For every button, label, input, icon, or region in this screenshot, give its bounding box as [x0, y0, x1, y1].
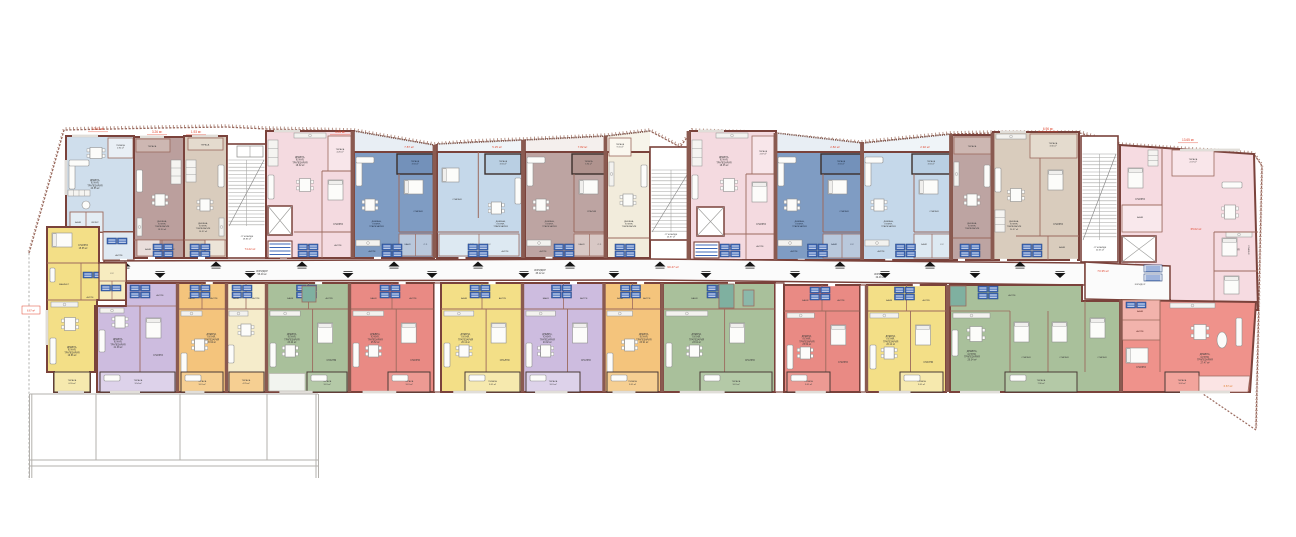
- svg-text:СПАЛНЯ: СПАЛНЯ: [410, 359, 420, 362]
- svg-text:СПАЛНЯ: СПАЛНЯ: [587, 210, 597, 213]
- svg-text:58.49 м²: 58.49 м²: [257, 273, 266, 276]
- svg-text:КУХНЯ,: КУХНЯ,: [640, 337, 649, 339]
- svg-text:БАНЯ: БАНЯ: [145, 248, 151, 251]
- svg-text:ТРАПЕЗАРИЯ: ТРАПЕЗАРИЯ: [965, 227, 980, 230]
- svg-text:АНТРЕ: АНТРЕ: [502, 250, 510, 253]
- svg-text:АНТРЕ: АНТРЕ: [252, 297, 260, 300]
- svg-text:СПАЛНЯ: СПАЛНЯ: [78, 244, 88, 247]
- svg-text:ДНЕВНА,: ДНЕВНА,: [1009, 220, 1019, 223]
- svg-text:7.82 м²: 7.82 м²: [578, 145, 587, 149]
- svg-text:3.61 м²: 3.61 м²: [805, 383, 812, 386]
- svg-text:АНТРЕ: АНТРЕ: [923, 299, 931, 302]
- svg-text:73.35 м²: 73.35 м²: [1097, 269, 1108, 273]
- svg-text:ТРАПЕЗАРИЯ: ТРАПЕЗАРИЯ: [368, 338, 384, 341]
- svg-text:ТЕРАСА: ТЕРАСА: [336, 148, 345, 151]
- svg-text:ТРАПЕЗАРИЯ: ТРАПЕЗАРИЯ: [542, 225, 557, 228]
- svg-text:ТЕРАСА: ТЕРАСА: [134, 379, 143, 382]
- svg-text:8.67 м²: 8.67 м²: [27, 310, 35, 313]
- svg-text:КОРИДОР: КОРИДОР: [1135, 284, 1146, 286]
- svg-text:ДНЕВНА,: ДНЕВНА,: [692, 333, 702, 336]
- svg-text:ДНЕВНА,: ДНЕВНА,: [157, 220, 167, 223]
- svg-text:ТРАПЕЗАРИЯ: ТРАПЕЗАРИЯ: [799, 340, 815, 343]
- svg-text:ТЕРАСА: ТЕРАСА: [201, 144, 210, 147]
- svg-text:ТРАПЕЗАРИЯ: ТРАПЕЗАРИЯ: [369, 225, 384, 228]
- svg-text:БАНЯ: БАНЯ: [370, 297, 376, 300]
- svg-text:ТЕРАСА: ТЕРАСА: [549, 380, 558, 383]
- svg-text:БАНЯ: БАНЯ: [75, 221, 81, 224]
- svg-text:3.61 м²: 3.61 м²: [732, 383, 739, 386]
- svg-text:ТЕРАСА: ТЕРАСА: [116, 144, 125, 147]
- svg-text:20.92 м²: 20.92 м²: [543, 341, 552, 344]
- svg-text:ТЕРАСА: ТЕРАСА: [148, 145, 157, 148]
- svg-text:АНТРЕ: АНТРЕ: [210, 297, 218, 300]
- svg-text:АНТРЕ: АНТРЕ: [643, 297, 651, 300]
- svg-text:ТРАПЕЗАРИЯ: ТРАПЕЗАРИЯ: [540, 338, 556, 341]
- svg-text:90.47 м²: 90.47 м²: [667, 265, 678, 269]
- svg-text:18.35 м²: 18.35 м²: [720, 164, 729, 167]
- svg-text:СПАЛНЯ: СПАЛНЯ: [1136, 366, 1146, 369]
- svg-text:АНТРЕ: АНТРЕ: [837, 299, 845, 302]
- svg-text:3.61 м²: 3.61 м²: [549, 383, 556, 386]
- svg-text:6.55 м²: 6.55 м²: [68, 382, 75, 385]
- svg-text:ДНЕВНА,: ДНЕВНА,: [287, 333, 297, 336]
- svg-text:3.61 м²: 3.61 м²: [918, 383, 925, 386]
- svg-text:4.26 м²: 4.26 м²: [335, 130, 345, 134]
- svg-text:26.12 м²: 26.12 м²: [461, 341, 470, 344]
- svg-text:БАНЯ: БАНЯ: [831, 243, 837, 246]
- svg-text:21.38 м²: 21.38 м²: [114, 346, 123, 349]
- svg-text:20.37 м²: 20.37 м²: [1010, 228, 1019, 231]
- svg-text:КУХНЯ,: КУХНЯ,: [692, 337, 701, 339]
- svg-text:АНТРЕ: АНТРЕ: [326, 297, 334, 300]
- svg-text:КУХНЯ,: КУХНЯ,: [543, 337, 552, 339]
- svg-text:ТРАПЕЗАРИЯ: ТРАПЕЗАРИЯ: [636, 338, 652, 341]
- svg-text:ДНЕВНА,: ДНЕВНА,: [295, 156, 305, 159]
- svg-text:ТРАПЕЗАРИЯ: ТРАПЕЗАРИЯ: [284, 338, 300, 341]
- svg-text:19.86 м²: 19.86 м²: [68, 354, 77, 357]
- svg-text:БАНЯ: БАНЯ: [1059, 246, 1065, 249]
- svg-text:АНТРЕ: АНТРЕ: [409, 297, 417, 300]
- svg-text:ДНЕВНА,: ДНЕВНА,: [795, 220, 805, 223]
- svg-text:КУХНЯ,: КУХНЯ,: [68, 350, 77, 352]
- svg-text:ТРАПЕЗАРИЯ: ТРАПЕЗАРИЯ: [881, 225, 896, 228]
- svg-text:АНТРЕ: АНТРЕ: [1136, 330, 1144, 333]
- svg-text:ДНЕВНА,: ДНЕВНА,: [624, 220, 634, 223]
- svg-text:12.62 м²: 12.62 м²: [92, 127, 104, 131]
- svg-text:ТРАПЕЗАРИЯ: ТРАПЕЗАРИЯ: [155, 225, 170, 228]
- svg-text:СПАЛНЯ: СПАЛНЯ: [756, 223, 766, 226]
- svg-text:ДНЕВНА,: ДНЕВНА,: [802, 335, 812, 338]
- svg-text:4.25 м²: 4.25 м²: [242, 382, 249, 385]
- svg-text:КУХНЯ,: КУХНЯ,: [114, 342, 123, 344]
- svg-text:КУХНЯ,: КУХНЯ,: [803, 339, 812, 341]
- svg-text:С.У.: С.У.: [940, 244, 944, 246]
- svg-text:ТЕРАСА: ТЕРАСА: [488, 380, 497, 383]
- svg-text:ТРАПЕЗАРИЯ: ТРАПЕЗАРИЯ: [64, 351, 80, 354]
- svg-text:3.30 м²: 3.30 м²: [1049, 145, 1056, 148]
- svg-text:65.02 м²: 65.02 м²: [1191, 227, 1202, 231]
- svg-text:СПАЛНЯ: СПАЛНЯ: [839, 210, 849, 213]
- svg-text:КУХНЯ,: КУХНЯ,: [207, 337, 216, 339]
- svg-text:ДНЕВНА,: ДНЕВНА,: [545, 220, 555, 223]
- svg-text:ДНЕВНА,: ДНЕВНА,: [542, 333, 552, 336]
- svg-text:20.92 м²: 20.92 м²: [207, 341, 216, 344]
- svg-text:ТРАПЕЗАРИЯ: ТРАПЕЗАРИЯ: [689, 338, 705, 341]
- svg-text:СПАЛНЯ: СПАЛНЯ: [153, 354, 163, 357]
- svg-text:ТЕРАСА: ТЕРАСА: [1049, 142, 1058, 145]
- svg-text:СПАЛНЯ: СПАЛНЯ: [1135, 198, 1145, 201]
- svg-text:КУХНЯ,: КУХНЯ,: [371, 337, 380, 339]
- svg-text:ТРАПЕЗАРИЯ: ТРАПЕЗАРИЯ: [622, 225, 637, 228]
- svg-text:АНТРЕ: АНТРЕ: [540, 250, 548, 253]
- svg-text:25.52 м²: 25.52 м²: [802, 343, 811, 346]
- svg-text:ТРАПЕЗАРИЯ: ТРАПЕЗАРИЯ: [458, 338, 474, 341]
- svg-text:ТЕРАСА: ТЕРАСА: [732, 380, 741, 383]
- svg-text:БАНЯ: БАНЯ: [886, 299, 892, 302]
- svg-text:АНТРЕ: АНТРЕ: [369, 250, 377, 253]
- svg-text:АНТРЕ: АНТРЕ: [115, 254, 123, 257]
- svg-text:ДНЕВНА,: ДНЕВНА,: [198, 222, 208, 225]
- svg-text:КАБИНЕТ: КАБИНЕТ: [59, 283, 70, 286]
- svg-text:СПАЛНЯ: СПАЛНЯ: [333, 223, 343, 226]
- svg-text:ТРАПЕЗАРИЯ: ТРАПЕЗАРИЯ: [110, 343, 126, 346]
- svg-text:ТРАПЕЗАРИЯ: ТРАПЕЗАРИЯ: [716, 161, 732, 164]
- svg-text:27.47 м²: 27.47 м²: [1200, 361, 1209, 364]
- svg-text:БАНЯ: БАНЯ: [691, 297, 697, 300]
- svg-text:4.26 м²: 4.26 м²: [336, 151, 343, 154]
- svg-text:АНТРЕ: АНТРЕ: [1008, 294, 1016, 297]
- svg-text:ТЕРАСА: ТЕРАСА: [968, 145, 977, 148]
- svg-text:26.12 м²: 26.12 м²: [886, 343, 895, 346]
- svg-text:БАНЯ: БАНЯ: [1137, 310, 1143, 313]
- svg-text:С.У.: С.У.: [110, 273, 114, 275]
- svg-text:ДНЕВНА,: ДНЕВНА,: [461, 333, 471, 336]
- svg-text:18.32 м²: 18.32 м²: [296, 164, 305, 167]
- svg-text:23.24 м²: 23.24 м²: [288, 341, 297, 344]
- svg-text:ТРАПЕЗАРИЯ: ТРАПЕЗАРИЯ: [87, 184, 103, 187]
- svg-text:3.94 м²: 3.94 м²: [412, 163, 419, 166]
- svg-text:СПАЛНЯ: СПАЛНЯ: [1021, 356, 1031, 359]
- svg-text:ДНЕВНА,: ДНЕВНА,: [90, 179, 100, 182]
- svg-text:КУХНЯ,: КУХНЯ,: [296, 160, 305, 162]
- svg-text:13.65 м²: 13.65 м²: [1182, 138, 1194, 142]
- svg-text:2.92 м²: 2.92 м²: [920, 145, 929, 149]
- svg-text:ТРАПЕЗАРИЯ: ТРАПЕЗАРИЯ: [883, 340, 899, 343]
- svg-text:45.12 м²: 45.12 м²: [535, 272, 544, 275]
- svg-text:ТЕРАСА: ТЕРАСА: [1189, 158, 1198, 161]
- svg-text:ДНЕВНА,: ДНЕВНА,: [884, 220, 894, 223]
- svg-text:ДНЕВНА,: ДНЕВНА,: [639, 333, 649, 336]
- svg-text:СПАЛНЯ: СПАЛНЯ: [452, 198, 462, 201]
- svg-text:3.61 м²: 3.61 м²: [629, 383, 636, 386]
- svg-text:ДНЕВНА,: ДНЕВНА,: [719, 156, 729, 159]
- svg-text:АНТРЕ: АНТРЕ: [499, 297, 507, 300]
- svg-text:6.96 м²: 6.96 м²: [1043, 127, 1053, 131]
- svg-text:2.37 м²: 2.37 м²: [1189, 161, 1196, 164]
- svg-text:ДНЕВНА,: ДНЕВНА,: [886, 335, 896, 338]
- svg-text:СПАЛНЯ: СПАЛНЯ: [1247, 245, 1250, 255]
- svg-text:КУХНЯ,: КУХНЯ,: [720, 160, 729, 162]
- svg-text:15.65 м²: 15.65 м²: [79, 247, 88, 250]
- svg-text:ТЕРАСА: ТЕРАСА: [242, 379, 251, 382]
- svg-text:СПАЛНЯ: СПАЛНЯ: [581, 359, 591, 362]
- svg-text:КУХНЯ,: КУХНЯ,: [461, 337, 470, 339]
- svg-text:СПАЛНЯ: СПАЛНЯ: [745, 359, 755, 362]
- svg-text:ТЕРАСА: ТЕРАСА: [628, 380, 637, 383]
- svg-text:26.97 м²: 26.97 м²: [667, 236, 676, 239]
- svg-text:1.93 м²: 1.93 м²: [191, 130, 201, 134]
- svg-text:23.55 м²: 23.55 м²: [91, 187, 100, 190]
- svg-text:С.У.: С.У.: [424, 244, 428, 246]
- svg-text:АНТРЕ: АНТРЕ: [791, 250, 799, 253]
- svg-text:3.54 м²: 3.54 м²: [134, 382, 141, 385]
- svg-text:СПАЛНЯ: СПАЛНЯ: [929, 210, 939, 213]
- svg-text:ДНЕВНА,: ДНЕВНА,: [496, 220, 506, 223]
- svg-text:АНТРЕ: АНТРЕ: [87, 296, 95, 299]
- svg-text:КУХНЯ,: КУХНЯ,: [887, 339, 896, 341]
- svg-text:2.92 м²: 2.92 м²: [117, 147, 124, 150]
- svg-text:КУХНЯ,: КУХНЯ,: [91, 183, 100, 185]
- svg-text:ДНЕВНА,: ДНЕВНА,: [967, 222, 977, 225]
- svg-text:29.34 м²: 29.34 м²: [967, 358, 976, 361]
- svg-text:19.49 м²: 19.49 м²: [875, 276, 884, 279]
- svg-text:ДНЕВНА,: ДНЕВНА,: [372, 220, 382, 223]
- svg-text:20.55 м²: 20.55 м²: [1096, 249, 1105, 252]
- svg-text:АНТРЕ: АНТРЕ: [334, 244, 342, 247]
- svg-text:ТЕРАСА: ТЕРАСА: [1037, 379, 1046, 382]
- svg-text:3.94 м²: 3.94 м²: [585, 163, 592, 166]
- svg-text:СПАЛНЯ: СПАЛНЯ: [413, 210, 423, 213]
- svg-text:ДНЕВНА,: ДНЕВНА,: [370, 333, 380, 336]
- svg-text:БАНЯ: БАНЯ: [579, 243, 585, 246]
- svg-text:БАНЯ: БАНЯ: [405, 243, 411, 246]
- svg-text:БАНЯ: БАНЯ: [1137, 216, 1143, 219]
- svg-text:7.90 м²: 7.90 м²: [1037, 382, 1044, 385]
- svg-text:ТЕРАСА: ТЕРАСА: [68, 379, 77, 382]
- svg-text:ТРАПЕЗАРИЯ: ТРАПЕЗАРИЯ: [792, 225, 807, 228]
- svg-text:БАНЯ: БАНЯ: [921, 243, 927, 246]
- svg-text:3.61 м²: 3.61 м²: [405, 383, 412, 386]
- svg-text:3.02 м²: 3.02 м²: [1178, 382, 1185, 385]
- svg-text:С.У.: С.У.: [850, 244, 854, 246]
- svg-text:СПАЛНЯ: СПАЛНЯ: [326, 359, 336, 362]
- svg-text:СПАЛНЯ: СПАЛНЯ: [1059, 356, 1069, 359]
- svg-text:ТЕРАСА: ТЕРАСА: [1178, 379, 1187, 382]
- svg-text:СПАЛНЯ: СПАЛНЯ: [1097, 356, 1107, 359]
- svg-text:2.87 м²: 2.87 м²: [760, 153, 767, 156]
- svg-text:ТРАПЕЗАРИЯ: ТРАПЕЗАРИЯ: [292, 161, 308, 164]
- svg-text:3.61 м²: 3.61 м²: [323, 383, 330, 386]
- svg-text:АНТРЕ: АНТРЕ: [878, 250, 886, 253]
- svg-text:С.У.: С.У.: [598, 244, 602, 246]
- svg-text:АНТРЕ: АНТРЕ: [156, 294, 164, 297]
- svg-text:3.94 м²: 3.94 м²: [838, 163, 845, 166]
- svg-text:6.67 м²: 6.67 м²: [1224, 384, 1233, 388]
- svg-text:БАНЯ: БАНЯ: [287, 297, 293, 300]
- svg-text:ДНЕВНА,: ДНЕВНА,: [113, 338, 123, 341]
- svg-text:АНТРЕ: АНТРЕ: [580, 297, 588, 300]
- svg-text:25.52 м²: 25.52 м²: [371, 341, 380, 344]
- svg-text:СПАЛНЯ: СПАЛНЯ: [838, 361, 848, 364]
- svg-text:3.94 м²: 3.94 м²: [500, 163, 507, 166]
- svg-text:АНТРЕ: АНТРЕ: [756, 245, 764, 248]
- svg-text:ДНЕВНА,: ДНЕВНА,: [207, 333, 217, 336]
- svg-text:18.30 м²: 18.30 м²: [158, 228, 167, 231]
- svg-text:БАНЯ: БАНЯ: [461, 297, 467, 300]
- svg-text:7.87 м²: 7.87 м²: [404, 145, 413, 149]
- svg-text:28.86 м²: 28.86 м²: [243, 238, 252, 241]
- svg-text:КИЛЕР: КИЛЕР: [91, 222, 99, 224]
- svg-text:ТРАПЕЗАРИЯ: ТРАПЕЗАРИЯ: [1007, 225, 1022, 228]
- svg-text:ДНЕВНА,: ДНЕВНА,: [67, 346, 77, 349]
- svg-text:3.61 м²: 3.61 м²: [198, 383, 205, 386]
- svg-text:9.31 м²: 9.31 м²: [617, 146, 624, 149]
- svg-text:23.91 м²: 23.91 м²: [692, 341, 701, 344]
- svg-text:3.94 м²: 3.94 м²: [928, 163, 935, 166]
- svg-text:23.91 м²: 23.91 м²: [640, 341, 649, 344]
- svg-text:СПАЛНЯ: СПАЛНЯ: [923, 361, 933, 364]
- svg-text:2.82 м²: 2.82 м²: [830, 145, 839, 149]
- svg-text:16.32 м²: 16.32 м²: [199, 230, 208, 233]
- svg-text:3.61 м²: 3.61 м²: [489, 383, 496, 386]
- svg-text:ТРАПЕЗАРИЯ: ТРАПЕЗАРИЯ: [493, 225, 508, 228]
- svg-text:БАНЯ: БАНЯ: [802, 299, 808, 302]
- svg-text:3.26 м²: 3.26 м²: [152, 130, 162, 134]
- svg-text:74.22 м²: 74.22 м²: [245, 247, 256, 251]
- svg-text:5.25 м²: 5.25 м²: [492, 145, 501, 149]
- svg-text:СПАЛНЯ: СПАЛНЯ: [1053, 223, 1063, 226]
- svg-text:БАНЯ: БАНЯ: [543, 297, 549, 300]
- svg-text:СПАЛНЯ: СПАЛНЯ: [500, 359, 510, 362]
- svg-text:БАНЯ: БАНЯ: [233, 297, 239, 300]
- svg-text:ТРАПЕЗАРИЯ: ТРАПЕЗАРИЯ: [196, 227, 211, 230]
- svg-text:КУХНЯ,: КУХНЯ,: [288, 337, 297, 339]
